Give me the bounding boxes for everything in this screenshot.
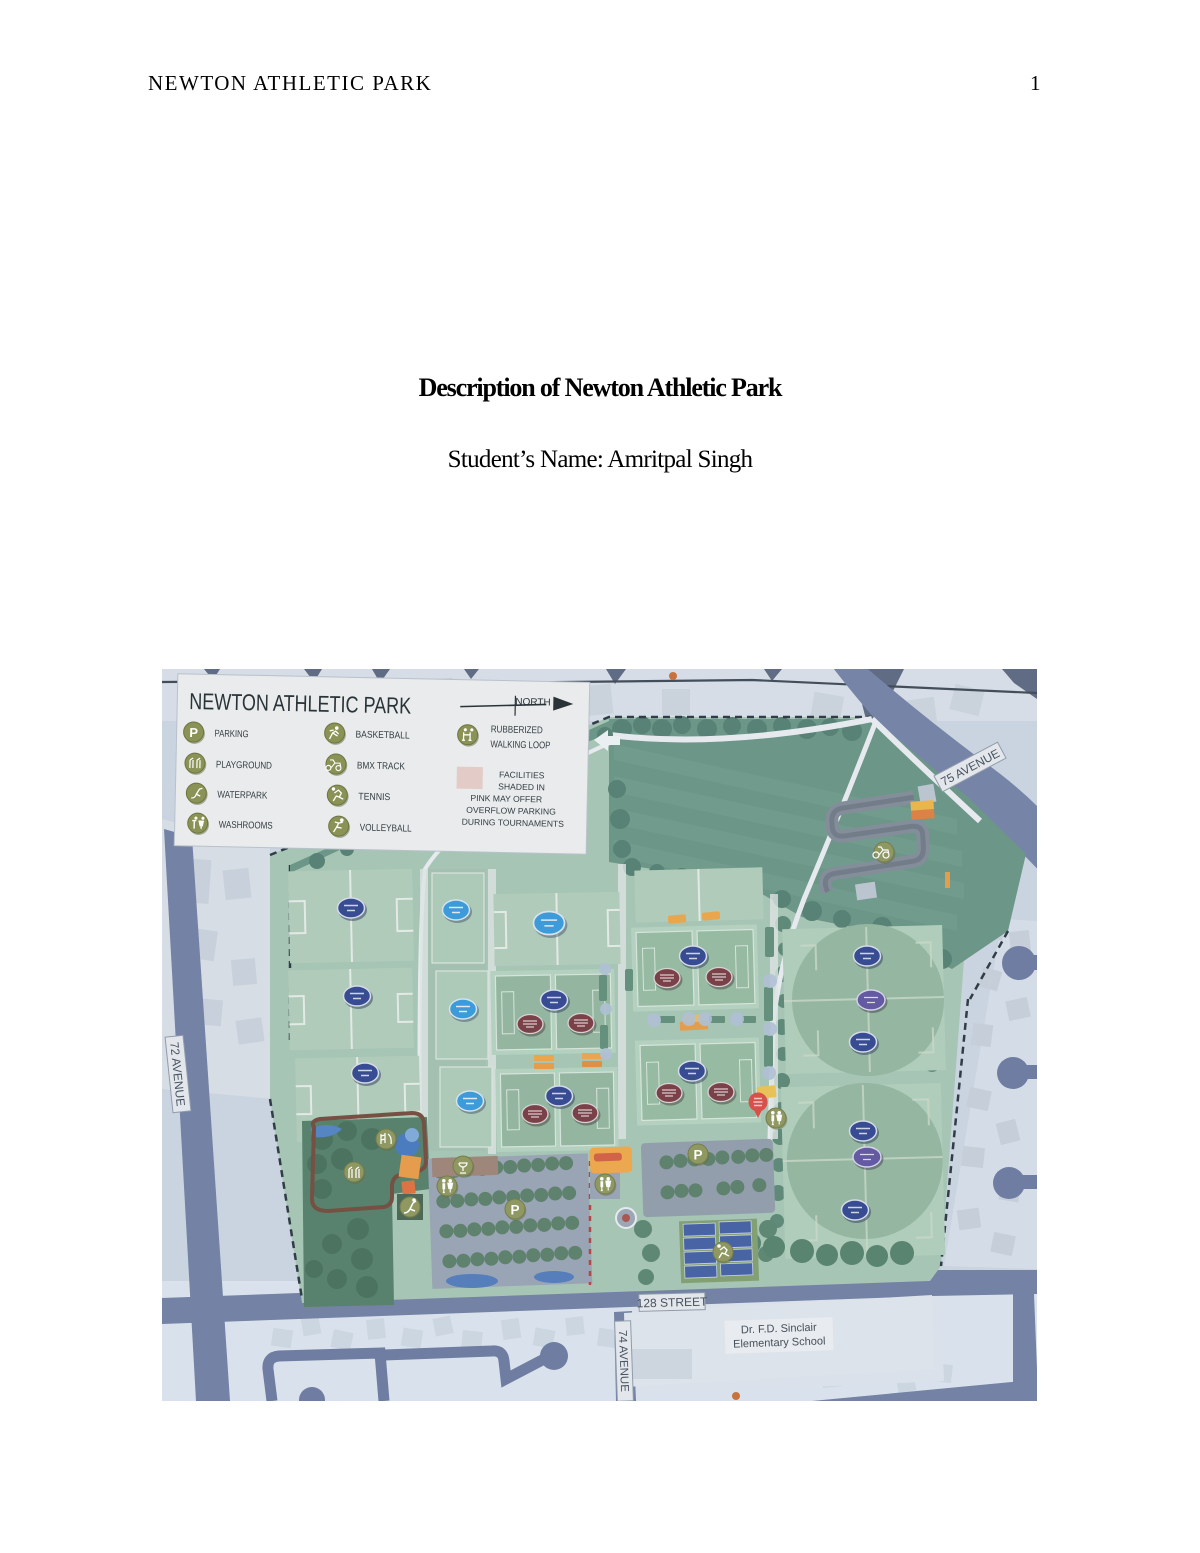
svg-text:BMX TRACK: BMX TRACK — [357, 760, 406, 772]
svg-text:RUBBERIZED: RUBBERIZED — [491, 724, 543, 736]
svg-text:BASKETBALL: BASKETBALL — [355, 729, 410, 741]
svg-text:TENNIS: TENNIS — [358, 792, 391, 804]
svg-text:OVERFLOW PARKING: OVERFLOW PARKING — [466, 805, 556, 817]
svg-text:SHADED IN: SHADED IN — [498, 781, 545, 792]
svg-text:PARKING: PARKING — [214, 728, 248, 740]
svg-text:P: P — [189, 725, 198, 740]
svg-text:WALKING LOOP: WALKING LOOP — [490, 739, 551, 751]
svg-text:FACILITIES: FACILITIES — [499, 769, 545, 780]
svg-text:NORTH: NORTH — [515, 697, 551, 709]
svg-text:WATERPARK: WATERPARK — [217, 790, 268, 802]
svg-text:WASHROOMS: WASHROOMS — [219, 820, 274, 832]
svg-text:PLAYGROUND: PLAYGROUND — [216, 760, 272, 772]
svg-text:VOLLEYBALL: VOLLEYBALL — [360, 823, 413, 835]
svg-text:PINK MAY OFFER: PINK MAY OFFER — [470, 793, 542, 805]
svg-text:NEWTON ATHLETIC PARK: NEWTON ATHLETIC PARK — [189, 688, 412, 719]
